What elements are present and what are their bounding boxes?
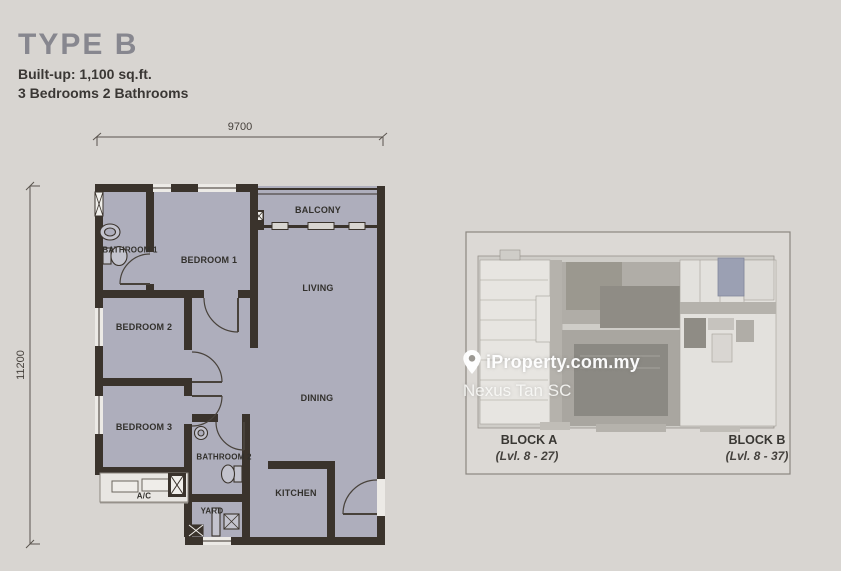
type-b-unit-highlight — [718, 258, 744, 296]
room-label-bathroom2: BATHROOM 2 — [196, 453, 251, 462]
block-b-levels: (Lvl. 8 - 37) — [726, 449, 789, 463]
room-label-ac: A/C — [137, 492, 151, 501]
block-a-levels: (Lvl. 8 - 27) — [496, 449, 559, 463]
room-label-balcony: BALCONY — [295, 205, 341, 215]
key-plan-building — [478, 250, 776, 432]
watermark-agent: Nexus Tan SC — [463, 381, 571, 401]
room-label-living: LIVING — [302, 283, 333, 293]
floor-plan-page: TYPE B Built-up: 1,100 sq.ft. 3 Bedrooms… — [0, 0, 841, 571]
room-label-bedroom1: BEDROOM 1 — [181, 255, 237, 265]
room-label-bedroom3: BEDROOM 3 — [116, 422, 172, 432]
watermark-brand: iProperty.com.my — [486, 352, 640, 373]
bedrooms-text: 3 Bedrooms 2 Bathrooms — [18, 84, 188, 103]
room-label-bedroom2: BEDROOM 2 — [116, 322, 172, 332]
block-a-name: BLOCK A — [501, 433, 557, 447]
room-label-kitchen: KITCHEN — [275, 488, 316, 498]
room-label-bathroom1: BATHROOM 1 — [102, 246, 157, 255]
location-pin-icon — [463, 350, 487, 374]
dimension-width-label: 9700 — [228, 121, 252, 133]
built-up-text: Built-up: 1,100 sq.ft. — [18, 65, 152, 84]
room-label-yard: YARD — [201, 507, 224, 516]
block-b-name: BLOCK B — [729, 433, 786, 447]
dimension-height-label: 11200 — [15, 350, 27, 380]
page-title: TYPE B — [18, 28, 138, 62]
room-label-dining: DINING — [301, 393, 334, 403]
